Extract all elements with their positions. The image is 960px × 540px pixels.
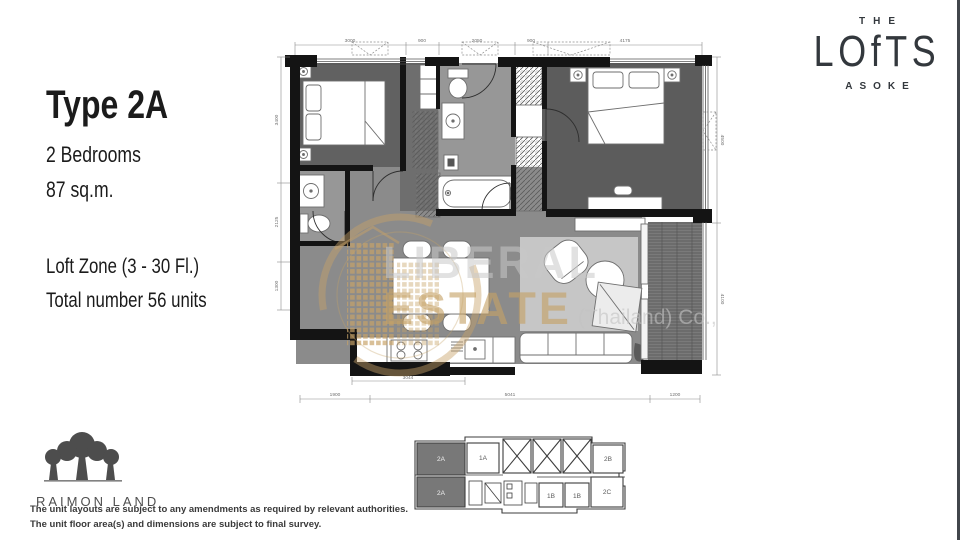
tv-console (575, 218, 645, 231)
svg-text:1B: 1B (573, 493, 581, 500)
lofts-asoke-logo: THE LOfTS ASOKE (806, 16, 948, 92)
svg-text:1A: 1A (479, 455, 488, 462)
sliding-door (641, 299, 648, 359)
svg-text:2C: 2C (603, 489, 612, 496)
floorplan-drawing: 3000 900 2050 900 4175 3400 2125 1300 45… (265, 15, 735, 420)
svg-text:3400: 3400 (274, 114, 280, 125)
svg-text:3000: 3000 (345, 38, 356, 44)
elevator-shafts (503, 439, 591, 473)
sliding-door (641, 224, 648, 284)
cabinet (420, 65, 438, 109)
svg-text:4175: 4175 (620, 38, 631, 44)
console-table (588, 197, 662, 210)
trees-icon (36, 430, 128, 486)
svg-text:1B: 1B (547, 493, 555, 500)
svg-text:2125: 2125 (274, 216, 280, 227)
stool (614, 186, 632, 195)
unit-type-title: Type 2A (46, 84, 207, 126)
svg-text:5041: 5041 (505, 392, 516, 398)
balcony-deck (648, 222, 702, 362)
disclaimer-line-1: The unit layouts are subject to any amen… (30, 503, 408, 518)
wardrobe (516, 137, 543, 211)
logo-the: THE (806, 16, 948, 27)
disclaimer-line-2: The unit floor area(s) and dimensions ar… (30, 518, 408, 533)
svg-text:4500: 4500 (719, 135, 725, 146)
svg-text:900: 900 (527, 38, 535, 44)
svg-text:900: 900 (418, 38, 426, 44)
unit-bedrooms: 2 Bedrooms (46, 142, 207, 168)
svg-text:4100: 4100 (719, 294, 725, 305)
unit-total-units: Total number 56 units (46, 289, 207, 313)
logo-asoke: ASOKE (806, 81, 948, 92)
unit-area: 87 sq.m. (46, 177, 207, 203)
svg-text:1200: 1200 (670, 392, 681, 398)
disclaimer: The unit layouts are subject to any amen… (30, 503, 408, 532)
wardrobe (515, 65, 542, 105)
wardrobe (412, 111, 438, 169)
raimon-land-logo: RAIMON LAND (36, 430, 216, 509)
unit-zone: Loft Zone (3 - 30 Fl.) (46, 255, 207, 279)
logo-lofts: LOfTS (812, 28, 943, 77)
unit-info-block: Type 2A 2 Bedrooms 87 sq.m. Loft Zone (3… (46, 84, 207, 313)
svg-text:2050: 2050 (472, 38, 483, 44)
svg-text:1900: 1900 (330, 392, 341, 398)
svg-text:2A: 2A (437, 456, 446, 463)
svg-text:2A: 2A (437, 490, 446, 497)
svg-text:2B: 2B (604, 456, 612, 463)
svg-text:1300: 1300 (274, 280, 280, 291)
building-key-plan: 2A 1A 2B 2A 1B 1B 2C (407, 431, 635, 527)
